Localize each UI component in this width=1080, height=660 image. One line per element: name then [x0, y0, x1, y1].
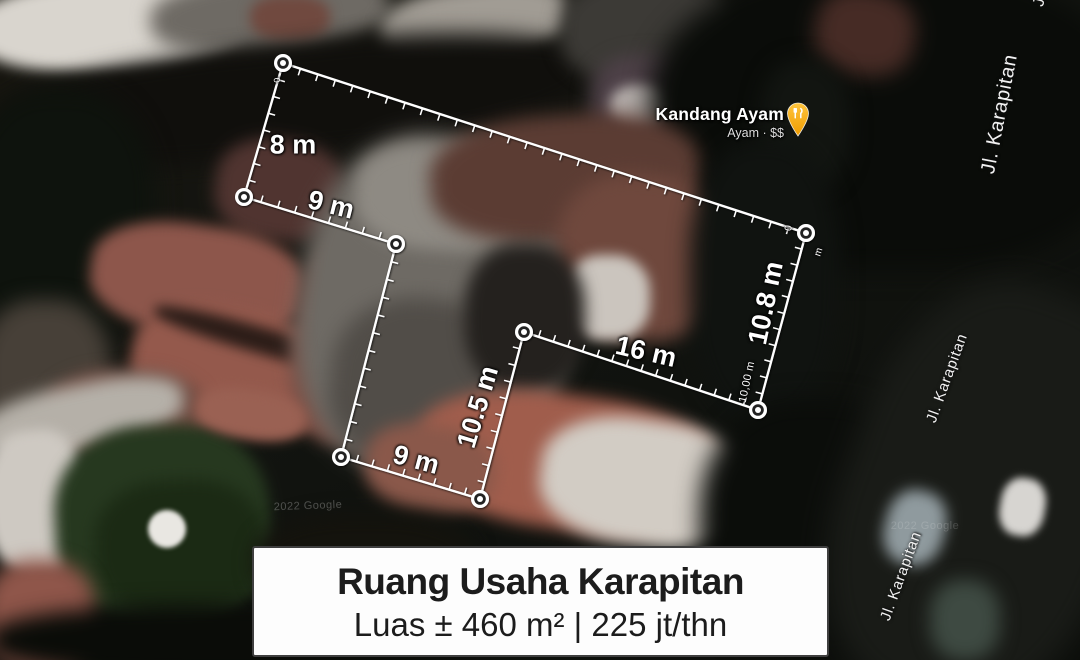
satellite-patch	[92, 476, 269, 620]
satellite-patch	[930, 580, 1000, 660]
listing-details: Luas ± 460 m² | 225 jt/thn	[354, 607, 727, 643]
listing-title: Ruang Usaha Karapitan	[337, 562, 744, 603]
poi-name[interactable]: Kandang Ayam	[656, 104, 785, 125]
property-map-screenshot: 10.8 m16 m10.5 m9 m9 m8 m10,00 m0m0Jl. K…	[0, 0, 1080, 660]
satellite-patch	[690, 140, 840, 420]
poi-category: Ayam · $$	[656, 126, 785, 140]
satellite-patch	[148, 510, 186, 548]
satellite-patch	[250, 0, 330, 40]
satellite-patch	[465, 245, 585, 390]
restaurant-pin-icon[interactable]	[786, 102, 810, 138]
poi-kandang-ayam[interactable]: Kandang Ayam Ayam · $$	[656, 104, 785, 140]
listing-banner: Ruang Usaha Karapitan Luas ± 460 m² | 22…	[252, 546, 829, 657]
pin-body	[788, 103, 809, 136]
